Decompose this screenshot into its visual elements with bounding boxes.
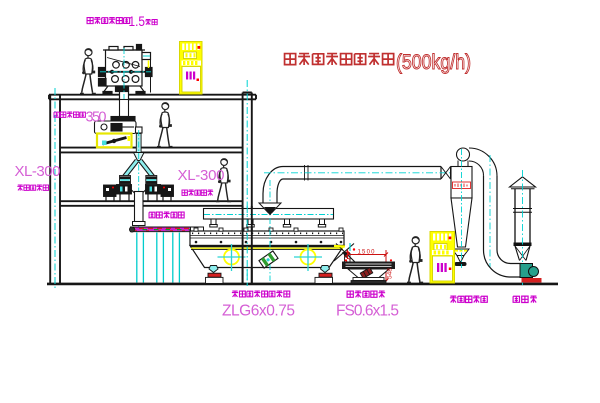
svg-text:1500: 1500	[358, 250, 376, 256]
svg-text:(500kg/h): (500kg/h)	[396, 50, 471, 74]
svg-text:548: 548	[387, 268, 394, 279]
svg-text:ZLG6x0.75: ZLG6x0.75	[222, 303, 295, 320]
svg-text:XL-300: XL-300	[15, 163, 61, 180]
svg-text:XL-300: XL-300	[178, 167, 225, 184]
svg-text:350: 350	[86, 110, 107, 126]
svg-text:1.5: 1.5	[129, 14, 146, 29]
svg-text:FS0.6x1.5: FS0.6x1.5	[336, 303, 399, 320]
